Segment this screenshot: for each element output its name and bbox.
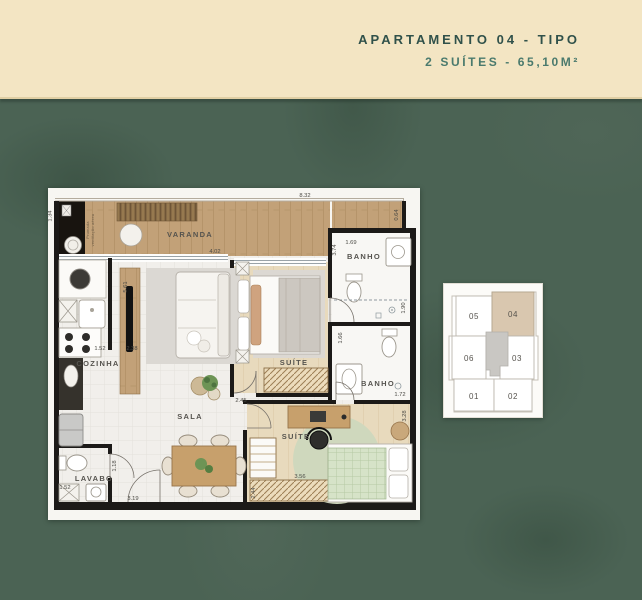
dim-varanda-total: 8.32 xyxy=(299,193,310,199)
keyplan-unit-label-06: 06 xyxy=(464,354,474,363)
dim-suite2-side: 3.28 xyxy=(402,410,408,421)
kitchen-sink xyxy=(79,300,105,328)
room-label-banho2: BANHO xyxy=(361,379,395,388)
header-text: APARTAMENTO 04 - TIPO 2 SUÍTES - 65,10M² xyxy=(358,32,580,69)
pergola xyxy=(117,203,197,221)
dim-sala-width: 2.38 xyxy=(126,346,137,352)
page-background: APARTAMENTO 04 - TIPO 2 SUÍTES - 65,10M² xyxy=(0,0,642,600)
varanda-table xyxy=(120,224,142,246)
room-label-banho1: BANHO xyxy=(347,252,381,261)
dim-suite2-width: 3.56 xyxy=(294,474,305,480)
sofa xyxy=(176,272,230,358)
dim-suite1-door: 2.45 xyxy=(235,398,246,404)
keyplan-unit-label-05: 05 xyxy=(469,312,479,321)
dim-banho2-depth: 1.66 xyxy=(338,332,344,343)
keyplan-unit-label-01: 01 xyxy=(469,392,479,401)
laptop xyxy=(310,411,326,422)
key-plan-drawing: 05 04 06 03 01 02 xyxy=(444,284,542,417)
suite2-side-table xyxy=(391,422,409,440)
lavabo-sink xyxy=(86,484,106,501)
banho2-vanity xyxy=(336,364,362,394)
dim-divider-height: 5.61 xyxy=(123,281,129,292)
shaft-note-line1: Prumada xyxy=(86,221,90,239)
apartment-title: APARTAMENTO 04 - TIPO xyxy=(358,32,580,47)
office-chair xyxy=(310,431,328,449)
suite1-wardrobe xyxy=(264,368,328,392)
dim-varanda-sala: 4.02 xyxy=(209,249,220,255)
washer-icon xyxy=(65,237,82,254)
dim-suite2-depth: 2.44 xyxy=(251,487,257,499)
room-label-varanda: VARANDA xyxy=(167,230,213,239)
banho1-vanity xyxy=(386,238,411,266)
dim-lavabo-width: 1.52 xyxy=(59,485,70,491)
utility-shaft xyxy=(59,201,85,258)
floor-plan: Prumada ventilação aérea xyxy=(48,188,420,520)
round-counter xyxy=(70,269,90,289)
apartment-subtitle: 2 SUÍTES - 65,10M² xyxy=(358,55,580,69)
toilet xyxy=(67,455,87,471)
room-label-suite1: SUÍTE xyxy=(280,358,309,367)
shaft-note-line2: ventilação aérea xyxy=(91,213,95,246)
key-plan: 05 04 06 03 01 02 xyxy=(443,283,543,418)
dim-hall-depth: 1.18 xyxy=(112,460,118,471)
floor-plan-drawing: Prumada ventilação aérea xyxy=(48,188,420,520)
suite2-shelves xyxy=(250,438,276,478)
banho2-toilet xyxy=(382,337,396,357)
room-label-suite2: SUÍTE xyxy=(282,432,311,441)
dim-banho1-shower: 1.90 xyxy=(401,302,407,313)
dim-banho1-width: 1.69 xyxy=(345,240,356,246)
dim-banho2-width: 1.72 xyxy=(394,392,405,398)
banho1-toilet xyxy=(347,282,361,302)
room-label-sala: SALA xyxy=(177,412,203,421)
tv xyxy=(126,286,133,352)
keyplan-unit-label-04: 04 xyxy=(508,310,518,319)
keyplan-unit-label-03: 03 xyxy=(512,354,522,363)
dim-sala-bottom: 3.19 xyxy=(127,496,138,502)
dim-shaft-width: 1.34 xyxy=(48,210,54,222)
header-band: APARTAMENTO 04 - TIPO 2 SUÍTES - 65,10M² xyxy=(0,0,642,99)
dim-cozinha-width: 1.52 xyxy=(94,346,105,352)
room-label-lavabo: LAVABO xyxy=(75,474,113,483)
dim-varanda-right: 0.64 xyxy=(394,209,400,221)
suite2-wardrobe xyxy=(250,480,332,501)
stove xyxy=(59,328,101,357)
room-label-cozinha: COZINHA xyxy=(76,359,119,368)
plant xyxy=(202,375,218,391)
keyplan-unit-label-02: 02 xyxy=(508,392,518,401)
dim-banho1-depth: 3.74 xyxy=(332,244,338,256)
